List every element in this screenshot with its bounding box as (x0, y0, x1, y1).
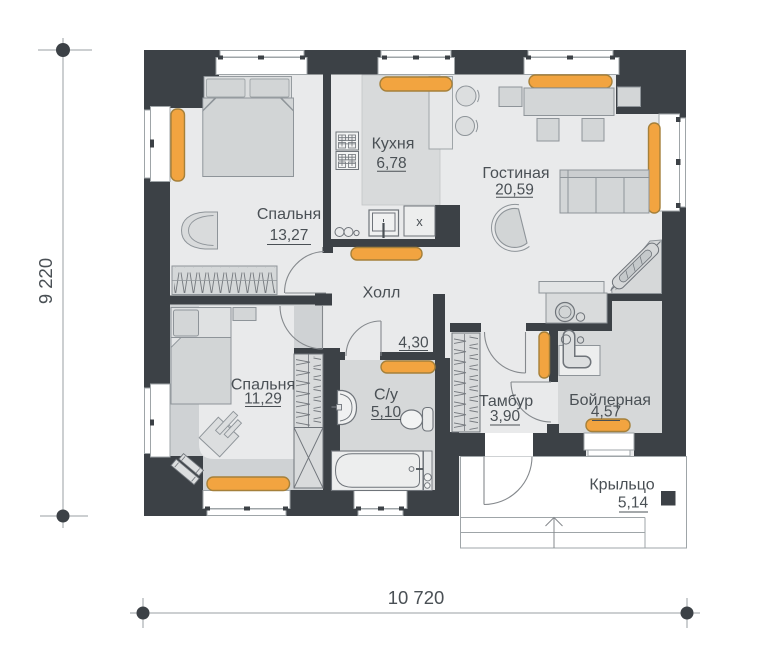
svg-text:13,27: 13,27 (270, 227, 309, 244)
svg-text:Крыльцо: Крыльцо (589, 477, 654, 494)
svg-text:11,29: 11,29 (244, 391, 282, 408)
svg-text:3,90: 3,90 (490, 408, 521, 425)
svg-text:6,78: 6,78 (376, 155, 406, 172)
svg-text:Гостиная: Гостиная (482, 165, 549, 182)
svg-text:20,59: 20,59 (495, 182, 534, 199)
svg-text:10 720: 10 720 (388, 587, 445, 608)
svg-text:Кухня: Кухня (372, 136, 415, 153)
svg-text:С/у: С/у (374, 387, 398, 404)
svg-text:Спальня: Спальня (257, 206, 321, 223)
svg-text:Холл: Холл (363, 285, 401, 302)
svg-text:9 220: 9 220 (35, 258, 56, 304)
svg-text:4,30: 4,30 (398, 335, 429, 352)
svg-text:5,10: 5,10 (371, 404, 402, 421)
svg-text:x: x (416, 214, 423, 229)
svg-text:5,14: 5,14 (618, 495, 649, 512)
svg-text:4,57: 4,57 (591, 404, 621, 421)
